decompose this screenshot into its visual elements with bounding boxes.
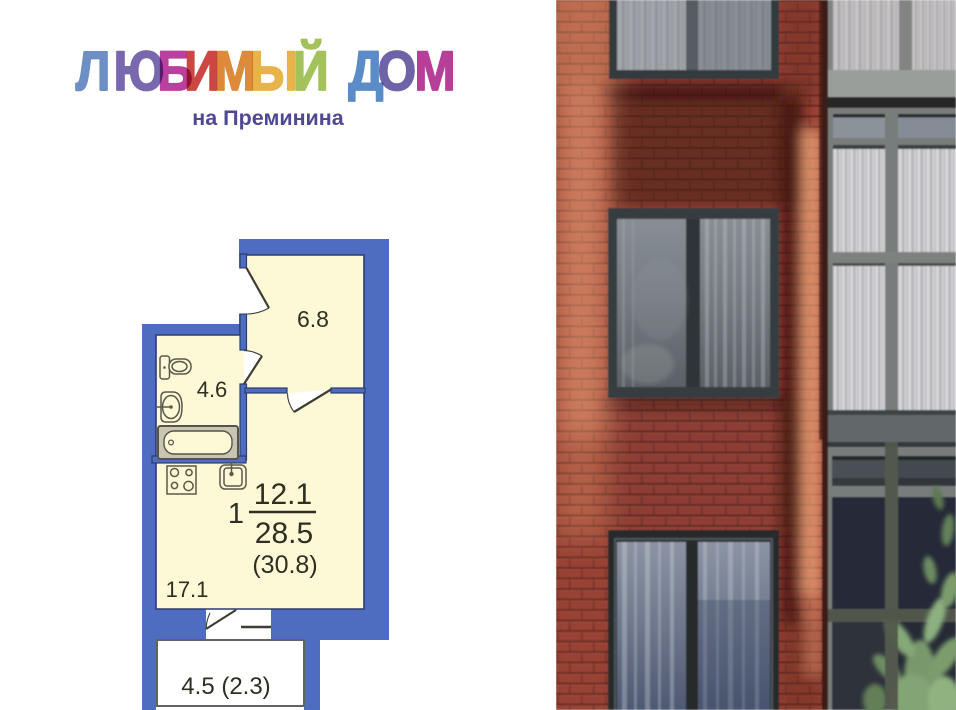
svg-text:17.1: 17.1 (166, 577, 209, 602)
svg-text:6.8: 6.8 (297, 306, 329, 332)
svg-text:на Преминина: на Преминина (192, 106, 344, 130)
svg-text:1: 1 (228, 498, 244, 530)
svg-text:Л: Л (76, 40, 111, 103)
svg-text:28.5: 28.5 (255, 517, 313, 550)
svg-text:Й: Й (293, 38, 328, 103)
svg-text:(30.8): (30.8) (252, 551, 317, 579)
svg-text:Ы: Ы (250, 40, 298, 103)
svg-text:4.6: 4.6 (197, 377, 228, 402)
svg-text:12.1: 12.1 (254, 478, 312, 511)
svg-text:М: М (414, 40, 455, 103)
svg-text:О: О (378, 40, 416, 103)
svg-text:4.5 (2.3): 4.5 (2.3) (181, 673, 270, 700)
